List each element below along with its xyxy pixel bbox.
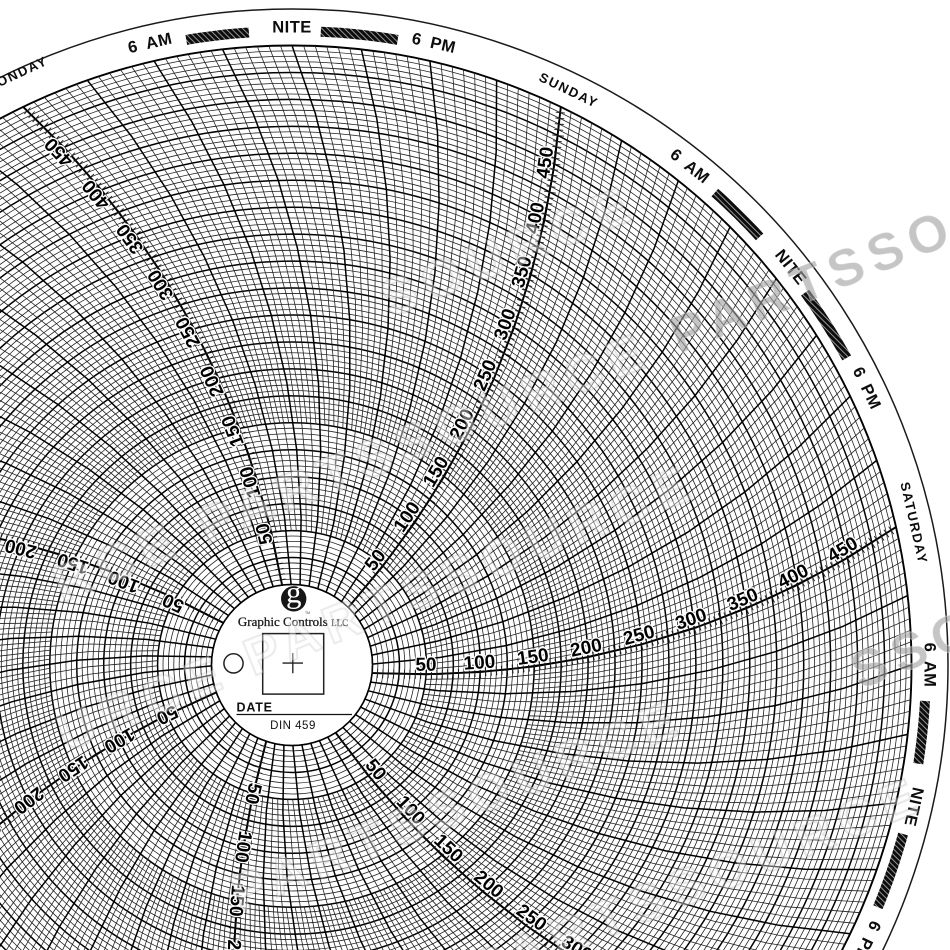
svg-text:g: g (286, 575, 302, 610)
svg-text:DIN 459: DIN 459 (270, 720, 316, 732)
svg-text:50: 50 (240, 781, 265, 806)
svg-text:DATE: DATE (237, 701, 273, 715)
svg-text:100: 100 (463, 651, 496, 674)
svg-text:50: 50 (415, 655, 436, 676)
svg-text:450: 450 (533, 146, 558, 180)
svg-text:NITE: NITE (272, 18, 312, 36)
svg-text:150: 150 (516, 645, 550, 670)
svg-text:200: 200 (222, 939, 244, 950)
